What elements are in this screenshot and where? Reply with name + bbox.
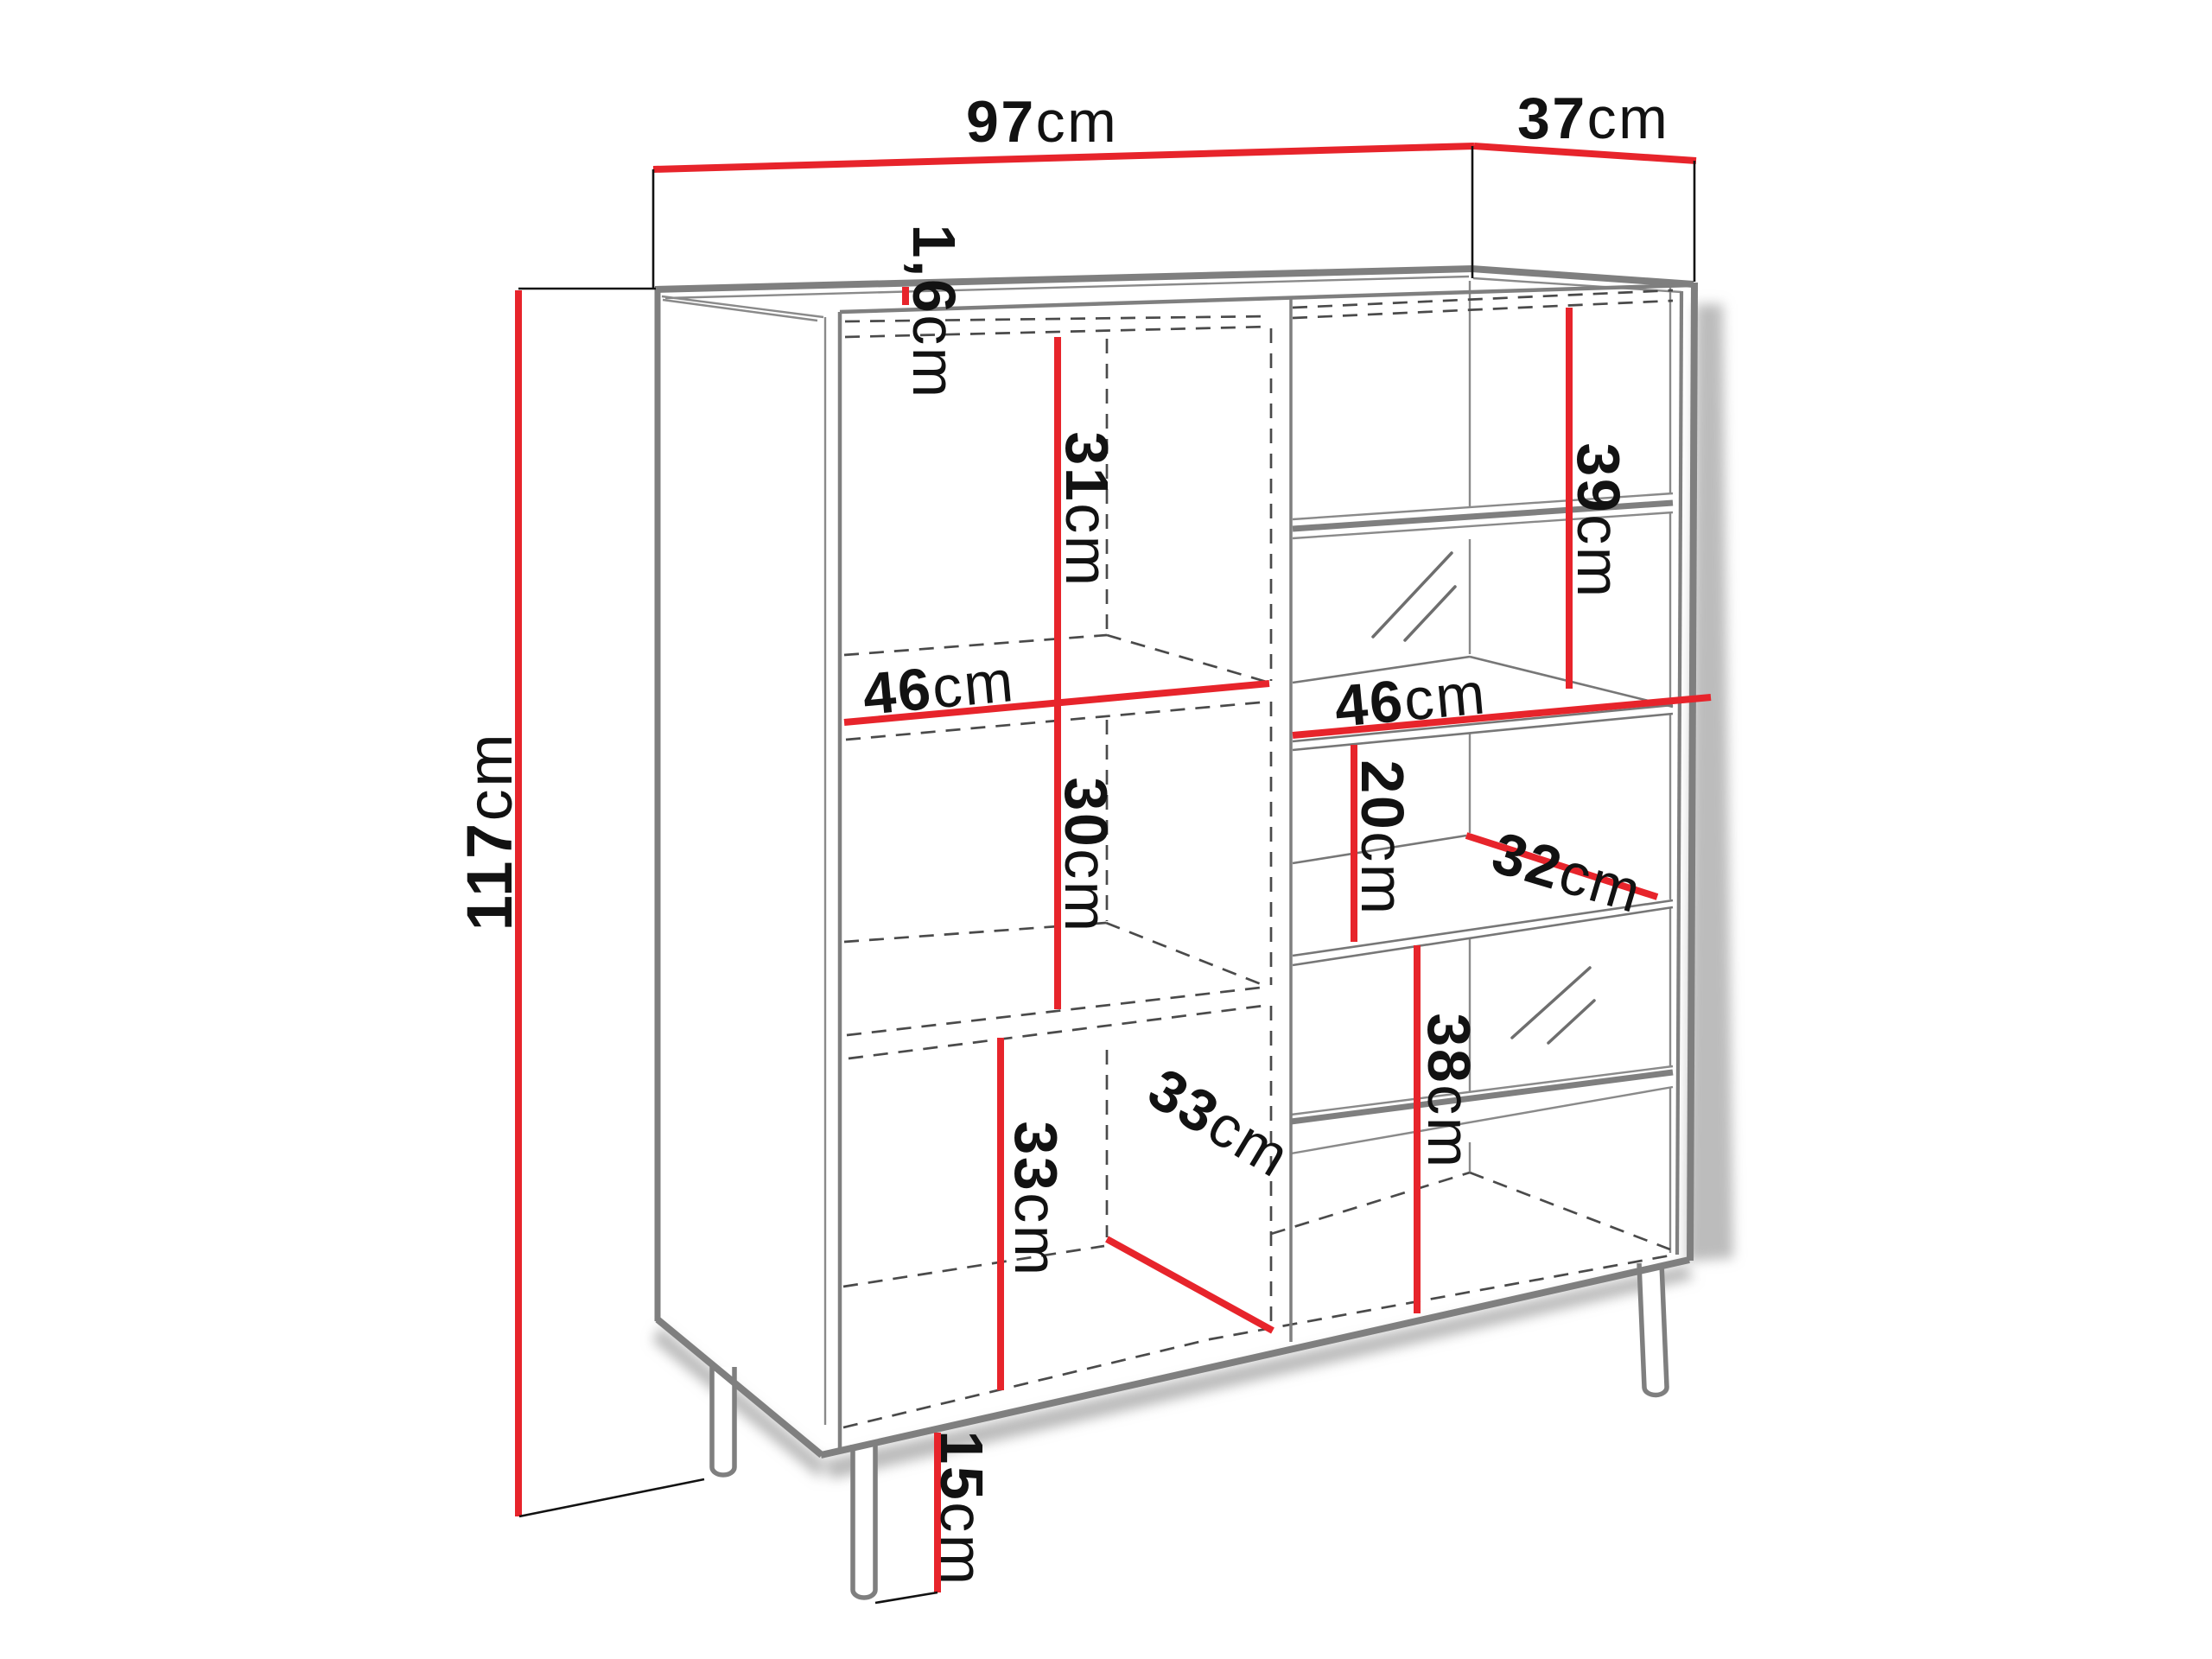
svg-text:1,6cm: 1,6cm	[900, 224, 968, 399]
svg-text:31cm: 31cm	[1053, 431, 1121, 588]
svg-text:33cm: 33cm	[1137, 1056, 1301, 1191]
svg-text:117cm: 117cm	[454, 732, 525, 931]
svg-text:46cm: 46cm	[1332, 660, 1489, 740]
svg-text:39cm: 39cm	[1565, 442, 1632, 599]
svg-text:37cm: 37cm	[1517, 86, 1669, 151]
svg-text:33cm: 33cm	[1002, 1121, 1070, 1277]
svg-text:15cm: 15cm	[928, 1430, 995, 1586]
svg-text:20cm: 20cm	[1349, 760, 1416, 916]
svg-text:97cm: 97cm	[966, 89, 1118, 155]
svg-text:30cm: 30cm	[1052, 777, 1120, 933]
svg-text:38cm: 38cm	[1415, 1013, 1483, 1169]
svg-text:46cm: 46cm	[860, 648, 1018, 728]
